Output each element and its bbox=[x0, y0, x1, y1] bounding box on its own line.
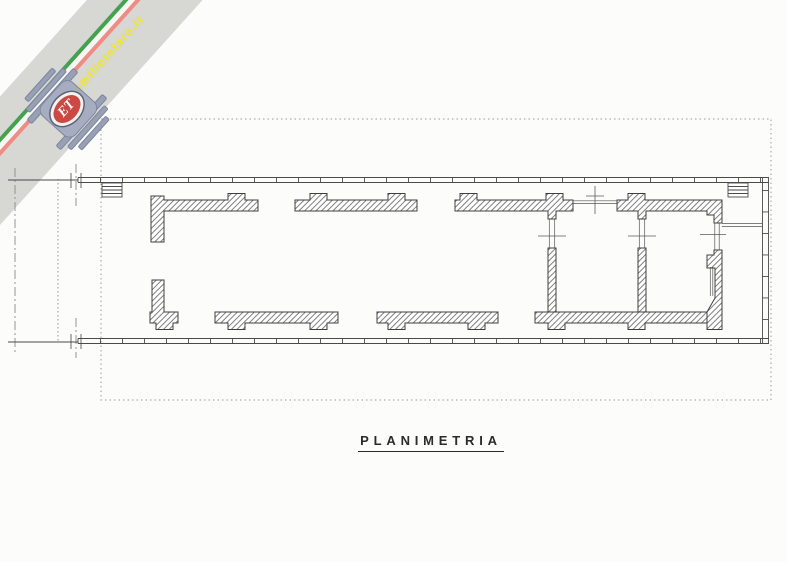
reference-lines bbox=[15, 164, 81, 358]
bottom-wall-segment-2 bbox=[377, 312, 498, 330]
floor-plan bbox=[0, 0, 787, 562]
drawing-title: PLANIMETRIA bbox=[358, 433, 504, 452]
room-wall-3-lower bbox=[707, 250, 722, 330]
top-wall-segment-b bbox=[295, 194, 417, 212]
hatched-walls bbox=[150, 194, 722, 330]
wall-pier-symbol-left bbox=[102, 183, 122, 197]
bottom-wall-segment-3 bbox=[535, 312, 707, 330]
top-wall-segment-a bbox=[151, 194, 258, 243]
top-wall-segment-c bbox=[455, 194, 573, 220]
wall-pier-symbol-right bbox=[728, 183, 748, 197]
room-wall-1 bbox=[548, 248, 556, 312]
boundary-dotted-rect bbox=[101, 119, 771, 400]
bottom-wall-segment-1 bbox=[215, 312, 338, 330]
scanned-drawing-page: www.emiliototaro.it ET bbox=[0, 0, 787, 562]
door-lines bbox=[549, 201, 762, 296]
room-wall-2 bbox=[638, 248, 646, 312]
top-wall-segment-d bbox=[617, 194, 722, 224]
bottom-left-pier bbox=[150, 280, 178, 330]
